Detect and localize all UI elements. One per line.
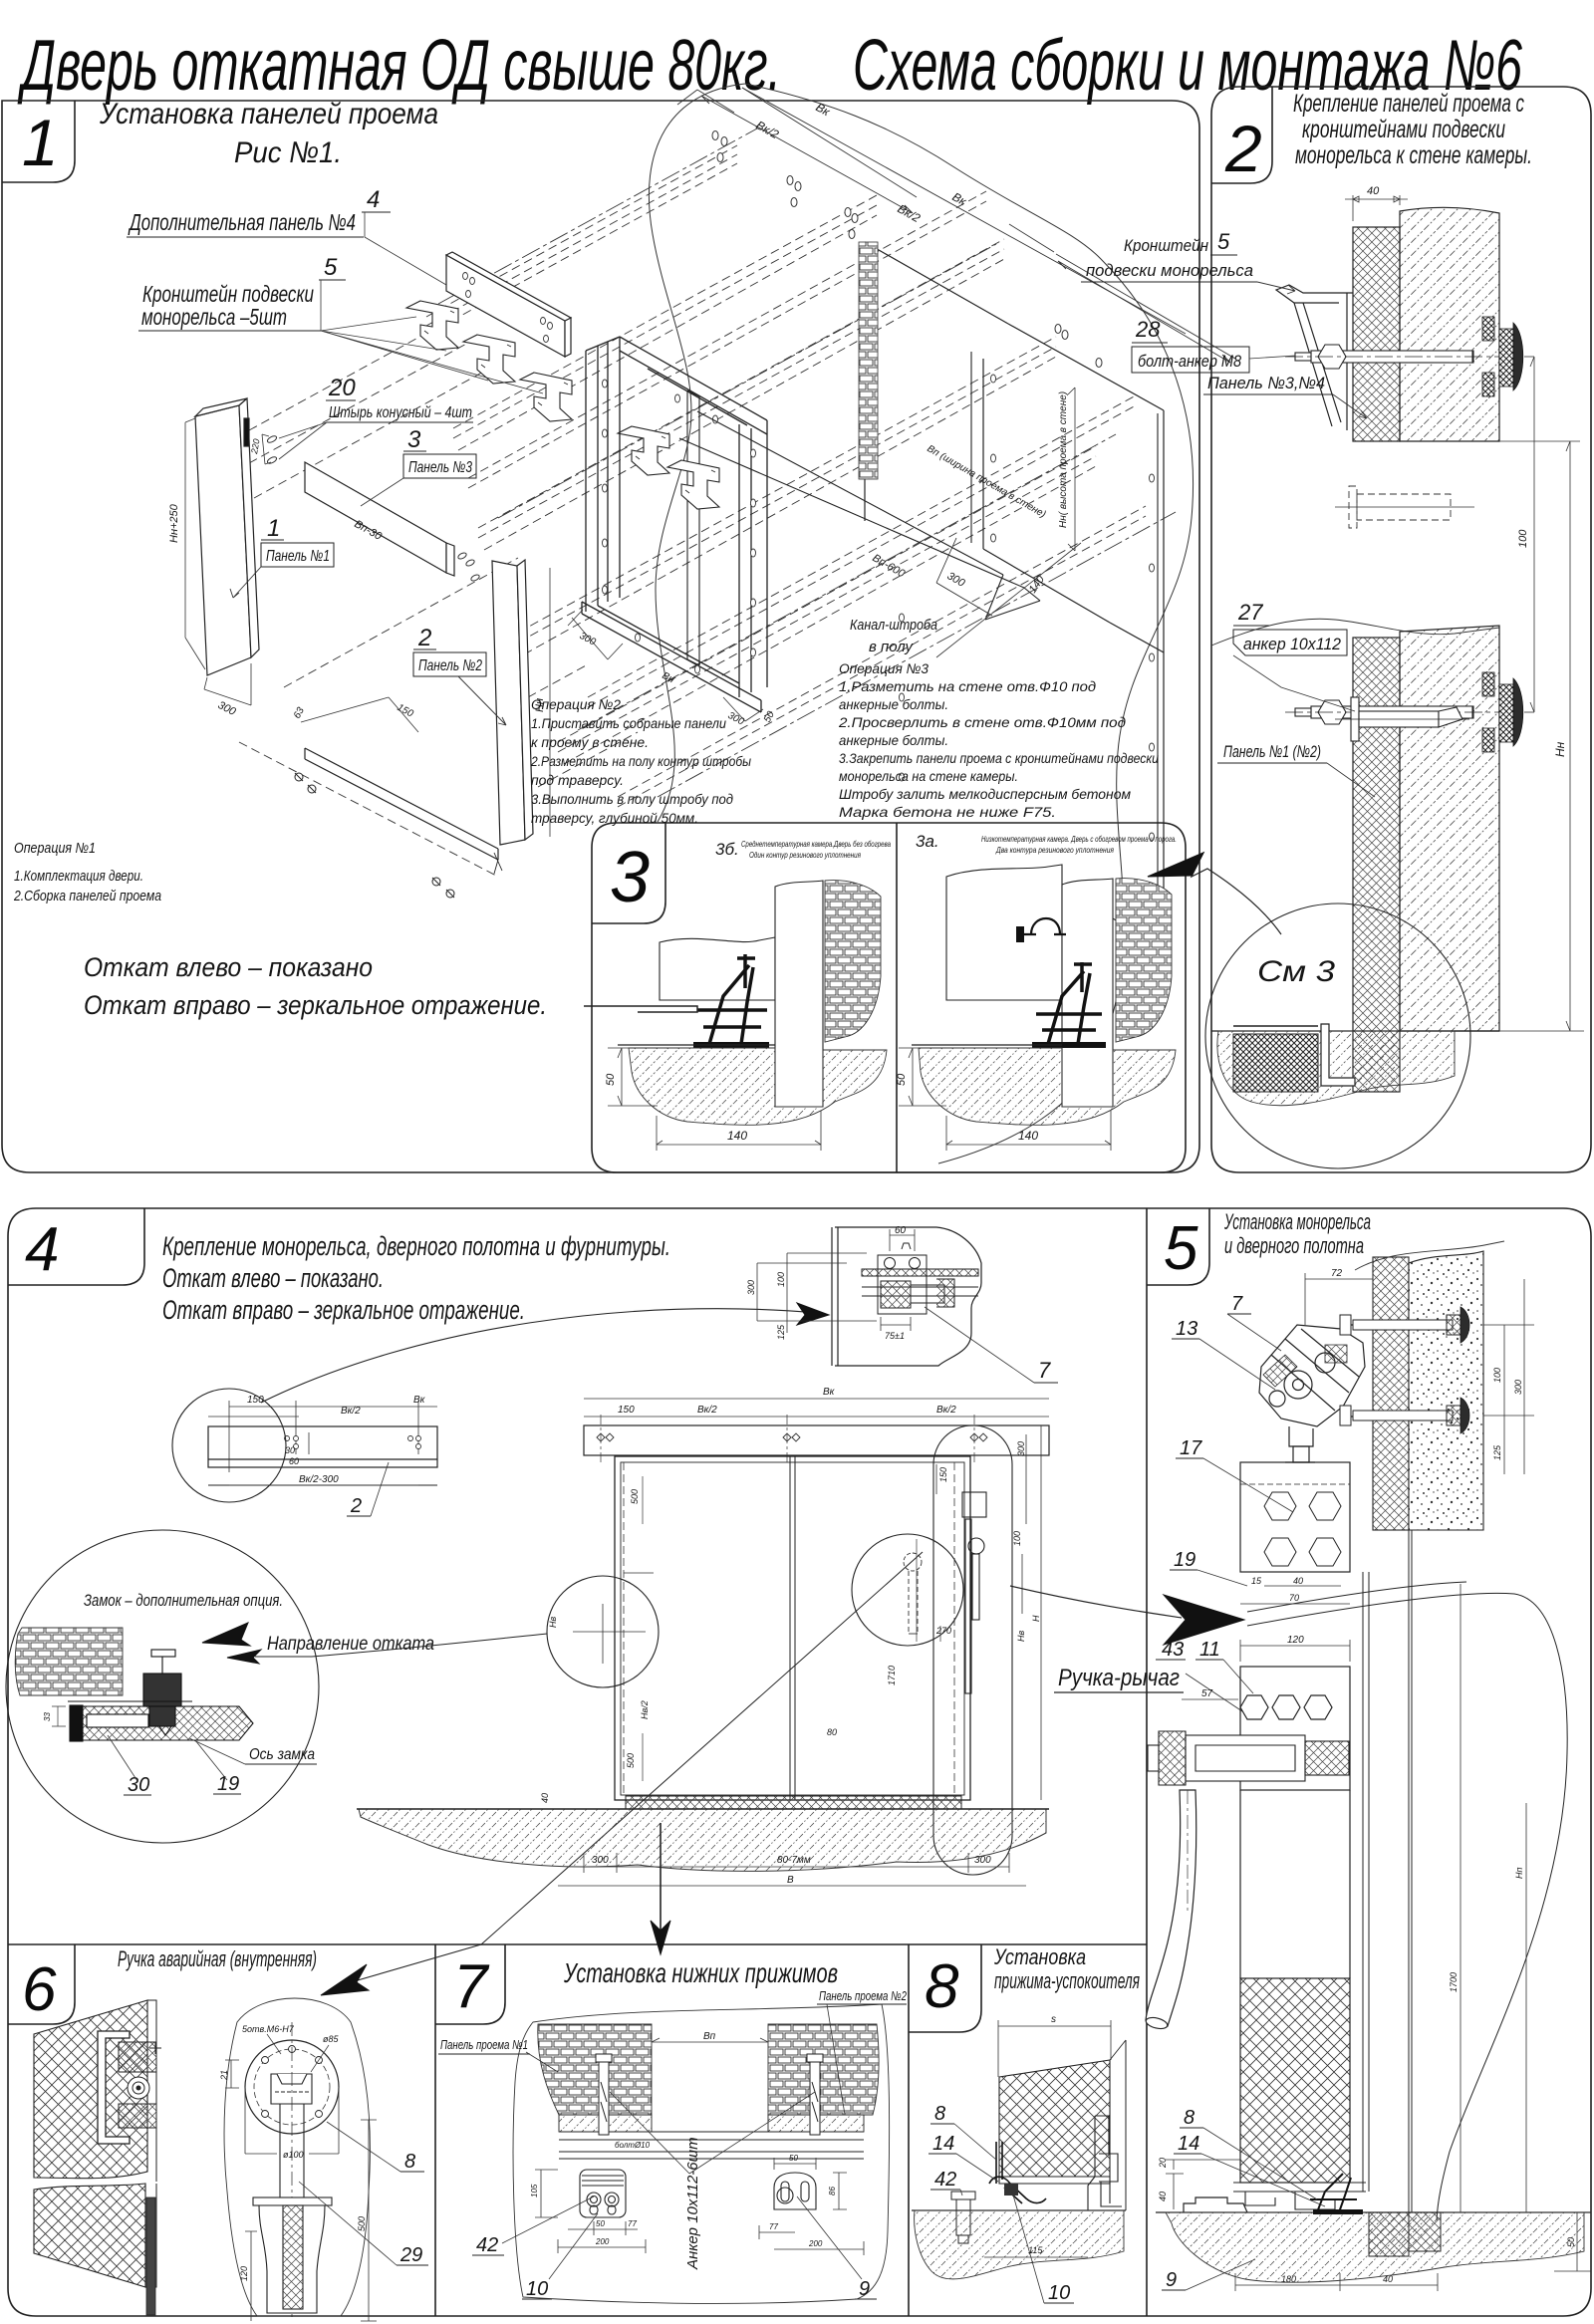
svg-text:s: s bbox=[1051, 2014, 1056, 2025]
svg-text:3.Закрепить панели проема с кр: 3.Закрепить панели проема с кронштейнами… bbox=[839, 750, 1159, 766]
svg-text:3: 3 bbox=[610, 838, 650, 917]
svg-text:4: 4 bbox=[367, 186, 380, 213]
svg-text:Крепление монорельса, дверного: Крепление монорельса, дверного полотна и… bbox=[162, 1231, 670, 1261]
svg-text:10: 10 bbox=[1048, 2282, 1070, 2304]
svg-text:7: 7 bbox=[1038, 1358, 1051, 1383]
svg-text:Нв: Нв bbox=[548, 1617, 558, 1628]
svg-text:Вк: Вк bbox=[823, 1387, 836, 1398]
svg-text:2.Сборка панелей проема: 2.Сборка панелей проема bbox=[13, 889, 161, 904]
svg-text:Откат вправо – зеркальное отра: Откат вправо – зеркальное отражение. bbox=[162, 1295, 525, 1325]
svg-text:Панель №3,№4: Панель №3,№4 bbox=[1207, 374, 1325, 392]
svg-text:ø85: ø85 bbox=[323, 2034, 340, 2044]
svg-text:Hн+250: Hн+250 bbox=[168, 503, 180, 543]
svg-text:Рис №1.: Рис №1. bbox=[234, 136, 342, 169]
svg-text:прижима-успокоителя: прижима-успокоителя bbox=[994, 1968, 1140, 1993]
svg-text:140: 140 bbox=[1018, 1129, 1038, 1143]
svg-text:Панель проема №1: Панель проема №1 bbox=[440, 2037, 528, 2052]
svg-text:Штробу залить мелкодисперсным: Штробу залить мелкодисперсным бетоном bbox=[839, 786, 1131, 802]
svg-text:14: 14 bbox=[932, 2133, 954, 2155]
svg-text:2: 2 bbox=[350, 1495, 362, 1517]
svg-text:Два контура резинового уплотне: Два контура резинового уплотнения bbox=[995, 845, 1114, 855]
svg-text:5: 5 bbox=[324, 254, 338, 281]
svg-text:19: 19 bbox=[1174, 1549, 1195, 1571]
svg-text:10: 10 bbox=[526, 2278, 548, 2300]
svg-text:2.Просверлить в стене отв.Ф10м: 2.Просверлить в стене отв.Ф10мм под bbox=[838, 714, 1126, 730]
svg-text:13: 13 bbox=[1176, 1318, 1197, 1340]
svg-text:150: 150 bbox=[247, 1395, 264, 1406]
svg-text:Откат влево – показано.: Откат влево – показано. bbox=[162, 1263, 384, 1293]
svg-text:17: 17 bbox=[1180, 1437, 1202, 1459]
svg-text:Вк/2: Вк/2 bbox=[697, 1405, 717, 1416]
svg-text:8: 8 bbox=[404, 2151, 415, 2173]
svg-text:150: 150 bbox=[618, 1405, 635, 1416]
svg-text:Вк/2-300: Вк/2-300 bbox=[299, 1474, 339, 1485]
svg-text:Панель №3: Панель №3 bbox=[408, 459, 472, 476]
svg-text:Установка нижних прижимов: Установка нижних прижимов bbox=[563, 1957, 838, 1988]
svg-text:300: 300 bbox=[592, 1855, 609, 1866]
svg-text:Установка монорельса: Установка монорельса bbox=[1223, 1209, 1371, 1234]
svg-text:29: 29 bbox=[399, 2244, 422, 2266]
svg-text:500: 500 bbox=[357, 2216, 367, 2231]
svg-text:Крепление панелей проема с: Крепление панелей проема с bbox=[1293, 90, 1524, 118]
svg-text:Канал-штроба: Канал-штроба bbox=[850, 617, 937, 634]
svg-text:50: 50 bbox=[789, 2154, 798, 2163]
svg-text:Ручка-рычаг: Ручка-рычаг bbox=[1058, 1665, 1180, 1691]
svg-text:Ручка аварийная (внутренняя): Ручка аварийная (внутренняя) bbox=[118, 1946, 317, 1971]
svg-text:1: 1 bbox=[267, 515, 280, 542]
svg-text:80-7мм: 80-7мм bbox=[777, 1855, 811, 1866]
svg-text:Кронштейн: Кронштейн bbox=[1124, 236, 1209, 255]
svg-text:27: 27 bbox=[1237, 600, 1263, 625]
svg-text:72: 72 bbox=[1331, 1268, 1343, 1279]
svg-text:Вк/2: Вк/2 bbox=[936, 1405, 956, 1416]
svg-text:42: 42 bbox=[934, 2169, 956, 2191]
svg-text:43: 43 bbox=[1162, 1639, 1184, 1661]
svg-text:300: 300 bbox=[1016, 1441, 1026, 1456]
svg-text:Дополнительная панель №4: Дополнительная панель №4 bbox=[128, 209, 356, 235]
svg-text:28: 28 bbox=[1135, 317, 1161, 342]
svg-text:1.Приставить собраные панели: 1.Приставить собраные панели bbox=[531, 715, 726, 731]
svg-text:Марка бетона не ниже F75.: Марка бетона не ниже F75. bbox=[839, 804, 1056, 820]
svg-text:500: 500 bbox=[626, 1753, 636, 1768]
svg-text:20: 20 bbox=[328, 375, 356, 401]
svg-text:125: 125 bbox=[776, 1324, 786, 1340]
svg-text:80: 80 bbox=[827, 1727, 837, 1737]
svg-text:Hн( высота проема в стене): Hн( высота проема в стене) bbox=[1058, 391, 1069, 528]
svg-text:30: 30 bbox=[128, 1774, 149, 1796]
svg-text:Операция №2: Операция №2 bbox=[531, 696, 621, 712]
svg-text:180: 180 bbox=[1281, 2274, 1296, 2284]
svg-text:5: 5 bbox=[1164, 1214, 1198, 1283]
svg-text:9: 9 bbox=[1166, 2269, 1177, 2291]
svg-text:Среднетемпературная камера.Две: Среднетемпературная камера.Дверь без обо… bbox=[741, 839, 891, 849]
svg-text:8: 8 bbox=[1184, 2107, 1195, 2129]
svg-text:1: 1 bbox=[22, 106, 59, 179]
svg-text:40: 40 bbox=[1367, 185, 1380, 197]
svg-text:траверсу, глубиной 50мм.: траверсу, глубиной 50мм. bbox=[531, 810, 698, 826]
svg-text:19: 19 bbox=[217, 1773, 239, 1795]
svg-text:1.Комплектация двери.: 1.Комплектация двери. bbox=[14, 869, 143, 885]
svg-text:100: 100 bbox=[1517, 529, 1529, 548]
svg-text:7: 7 bbox=[453, 1952, 490, 2021]
svg-text:20: 20 bbox=[1158, 2158, 1168, 2169]
svg-text:Откат вправо – зеркальное отра: Откат вправо – зеркальное отражение. bbox=[84, 990, 547, 1020]
svg-text:Нп: Нп bbox=[1514, 1868, 1524, 1879]
svg-text:125: 125 bbox=[1492, 1444, 1502, 1460]
svg-text:60: 60 bbox=[289, 1456, 299, 1466]
svg-text:Операция №3: Операция №3 bbox=[839, 660, 929, 676]
svg-text:21: 21 bbox=[219, 2070, 229, 2081]
svg-text:75±1: 75±1 bbox=[885, 1331, 905, 1341]
svg-text:Штырь конусный – 4шт: Штырь конусный – 4шт bbox=[329, 404, 472, 421]
svg-text:300: 300 bbox=[1513, 1380, 1523, 1395]
svg-text:подвески монорельса: подвески монорельса bbox=[1086, 261, 1253, 280]
svg-text:Вк: Вк bbox=[413, 1395, 426, 1406]
svg-text:Ось замка: Ось замка bbox=[249, 1746, 315, 1763]
svg-text:монорельса к стене камеры.: монорельса к стене камеры. bbox=[1295, 141, 1532, 169]
svg-text:8: 8 bbox=[925, 1952, 959, 2021]
svg-text:анкерные болты.: анкерные болты. bbox=[839, 696, 948, 712]
svg-text:8: 8 bbox=[934, 2103, 945, 2125]
svg-text:77: 77 bbox=[769, 2222, 778, 2231]
svg-text:анкер 10х112: анкер 10х112 bbox=[1243, 635, 1342, 653]
svg-text:анкерные болты.: анкерные болты. bbox=[839, 732, 948, 748]
svg-text:Направление отката: Направление отката bbox=[267, 1634, 434, 1655]
svg-text:40: 40 bbox=[1383, 2274, 1393, 2284]
svg-text:Откат влево – показано: Откат влево – показано bbox=[84, 952, 373, 982]
svg-text:200: 200 bbox=[808, 2239, 823, 2248]
svg-text:Дверь откатная ОД свыше 80кг.: Дверь откатная ОД свыше 80кг. bbox=[17, 26, 781, 106]
svg-text:под траверсу.: под траверсу. bbox=[531, 772, 624, 788]
svg-text:Вк/2: Вк/2 bbox=[341, 1406, 361, 1417]
svg-text:Один контур резинового уплотне: Один контур резинового уплотнения bbox=[749, 850, 861, 860]
svg-text:9: 9 bbox=[859, 2278, 870, 2300]
svg-text:3: 3 bbox=[407, 426, 421, 453]
svg-text:60: 60 bbox=[895, 1225, 907, 1236]
svg-text:1700: 1700 bbox=[1449, 1972, 1459, 1992]
svg-text:3б.: 3б. bbox=[715, 840, 739, 859]
svg-text:42: 42 bbox=[476, 2234, 498, 2256]
svg-text:Анкер 10х112-6шт: Анкер 10х112-6шт bbox=[684, 2137, 701, 2270]
svg-text:300: 300 bbox=[746, 1280, 756, 1295]
svg-text:33: 33 bbox=[43, 1712, 52, 1721]
svg-text:40: 40 bbox=[540, 1793, 550, 1803]
svg-text:Панель проема №2: Панель проема №2 bbox=[819, 1988, 908, 2003]
svg-text:монорельса на стене камеры.: монорельса на стене камеры. bbox=[839, 768, 1018, 784]
svg-text:100: 100 bbox=[1492, 1368, 1502, 1383]
svg-text:Низкотемпературная камера. Две: Низкотемпературная камера. Дверь с обогр… bbox=[981, 834, 1177, 844]
svg-text:4: 4 bbox=[25, 1215, 59, 1284]
svg-text:100: 100 bbox=[776, 1272, 786, 1287]
svg-text:50: 50 bbox=[896, 1073, 908, 1086]
svg-text:1.Разметить на стене отв.Ф10 п: 1.Разметить на стене отв.Ф10 под bbox=[839, 678, 1096, 694]
svg-text:200: 200 bbox=[595, 2237, 610, 2246]
svg-text:к проему в стене.: к проему в стене. bbox=[531, 734, 649, 750]
svg-text:40: 40 bbox=[1158, 2192, 1168, 2201]
svg-text:120: 120 bbox=[1287, 1635, 1304, 1646]
svg-text:болтØ10: болтØ10 bbox=[615, 2141, 651, 2150]
svg-text:11: 11 bbox=[1199, 1639, 1220, 1661]
svg-text:монорельса –5шт: монорельса –5шт bbox=[141, 304, 287, 330]
svg-text:6: 6 bbox=[22, 1955, 57, 2024]
svg-text:в полу: в полу bbox=[869, 639, 915, 655]
svg-text:50: 50 bbox=[596, 2219, 605, 2228]
svg-text:70: 70 bbox=[1289, 1593, 1299, 1603]
svg-text:57: 57 bbox=[1201, 1688, 1213, 1699]
svg-text:115: 115 bbox=[1028, 2245, 1043, 2255]
svg-text:15: 15 bbox=[1251, 1576, 1262, 1586]
svg-text:300: 300 bbox=[974, 1855, 991, 1866]
svg-text:1710: 1710 bbox=[887, 1666, 897, 1685]
svg-text:кронштейнами подвески: кронштейнами подвески bbox=[1302, 116, 1505, 143]
svg-text:болт-анкер М8: болт-анкер М8 bbox=[1138, 352, 1241, 371]
svg-text:Нв: Нв bbox=[1016, 1631, 1026, 1642]
svg-text:Н: Н bbox=[1031, 1615, 1041, 1622]
svg-text:500: 500 bbox=[630, 1489, 640, 1504]
svg-text:5отв.М6-Н7: 5отв.М6-Н7 bbox=[242, 2024, 295, 2034]
svg-text:150: 150 bbox=[938, 1467, 948, 1482]
svg-text:2.Разметить на полу контур штр: 2.Разметить на полу контур штробы bbox=[530, 753, 751, 769]
svg-text:Операция №1: Операция №1 bbox=[14, 841, 96, 857]
svg-text:100: 100 bbox=[1012, 1531, 1022, 1546]
svg-text:В: В bbox=[787, 1875, 794, 1886]
svg-text:Установка панелей проема: Установка панелей проема bbox=[99, 98, 438, 130]
svg-text:270: 270 bbox=[935, 1626, 951, 1636]
svg-text:ø100: ø100 bbox=[283, 2150, 304, 2160]
svg-text:50: 50 bbox=[1566, 2237, 1576, 2247]
svg-text:Вп: Вп bbox=[703, 2031, 716, 2042]
svg-text:5: 5 bbox=[1217, 229, 1230, 254]
svg-text:Панель №1: Панель №1 bbox=[266, 548, 330, 565]
svg-text:Hн: Hн bbox=[1553, 741, 1567, 757]
svg-text:Замок – дополнительная опция.: Замок – дополнительная опция. bbox=[84, 1591, 283, 1610]
svg-text:и дверного полотна: и дверного полотна bbox=[1224, 1233, 1364, 1258]
svg-text:3а.: 3а. bbox=[916, 832, 939, 851]
svg-text:Нв/2: Нв/2 bbox=[640, 1700, 650, 1719]
svg-text:120: 120 bbox=[239, 2266, 249, 2281]
svg-text:См 3: См 3 bbox=[1257, 955, 1335, 988]
svg-text:77: 77 bbox=[628, 2219, 637, 2228]
svg-text:3.Выполнить в полу штробу под: 3.Выполнить в полу штробу под bbox=[531, 791, 733, 807]
svg-text:14: 14 bbox=[1178, 2133, 1199, 2155]
svg-text:40: 40 bbox=[1293, 1576, 1303, 1586]
svg-text:Панель №2: Панель №2 bbox=[418, 657, 482, 674]
svg-text:105: 105 bbox=[530, 2184, 539, 2197]
svg-text:7: 7 bbox=[1231, 1293, 1243, 1315]
svg-text:140: 140 bbox=[727, 1129, 747, 1143]
svg-text:2: 2 bbox=[417, 625, 431, 651]
svg-text:Установка: Установка bbox=[993, 1944, 1086, 1969]
svg-text:86: 86 bbox=[828, 2187, 837, 2195]
svg-text:2: 2 bbox=[1224, 112, 1262, 185]
svg-text:Панель №1 (№2): Панель №1 (№2) bbox=[1223, 742, 1321, 761]
svg-text:50: 50 bbox=[605, 1073, 617, 1086]
